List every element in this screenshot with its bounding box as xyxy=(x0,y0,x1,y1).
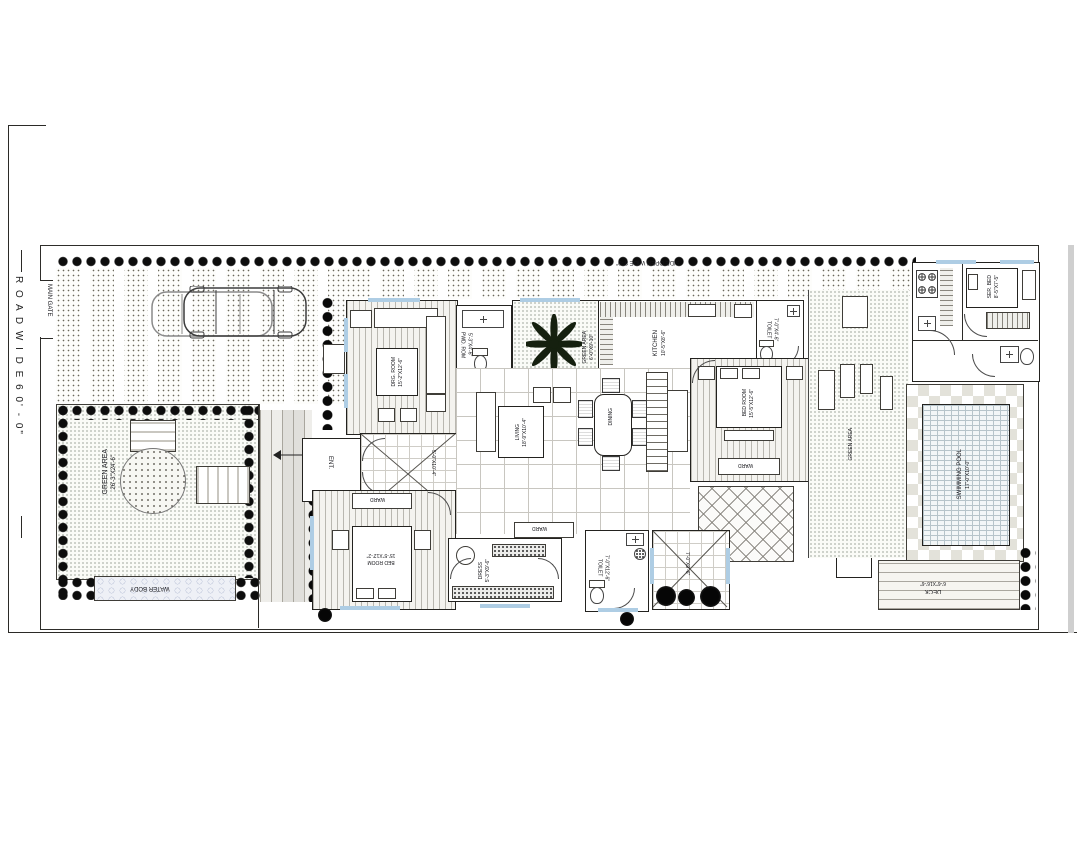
servant-wall-v xyxy=(962,262,963,340)
servant-sink xyxy=(918,316,936,331)
lounger-1 xyxy=(818,370,835,410)
hall-armchair-2 xyxy=(553,387,571,403)
drg-ottoman xyxy=(426,394,446,412)
shrub-bottom-left xyxy=(56,576,96,600)
dress-name: DRESS xyxy=(478,562,484,579)
mbed-bench xyxy=(724,430,774,441)
hall-sofa-right xyxy=(666,390,688,452)
sheet-right-edge xyxy=(1068,245,1074,633)
green-area-right xyxy=(808,290,909,558)
stair-strip xyxy=(646,372,668,472)
stove-icon xyxy=(916,270,938,298)
dress-counter-top xyxy=(492,544,546,557)
planter-box xyxy=(323,344,345,374)
toilet-bottom-name: TOILET xyxy=(597,559,603,576)
servant-side-unit xyxy=(1022,270,1036,300)
mbed-label: BED ROOM 15'-5"X12'-6" xyxy=(726,382,770,424)
living-label-box: LIVING 18'-9"X10'-4" xyxy=(498,406,544,458)
court-window-right xyxy=(726,548,730,584)
road-label: R O A D W I D E 6 0' - 0" xyxy=(12,276,24,512)
sheet-corner-tick xyxy=(8,125,46,126)
kitchen-appliance xyxy=(734,304,752,318)
bed2-pillow-2 xyxy=(378,588,396,599)
mbed-dim: 15'-5"X12'-6" xyxy=(749,389,755,418)
toilet-bottom-label: TOILET 7'-0"X12'-6" xyxy=(594,542,612,594)
pwd-name: PWD. ROM xyxy=(460,332,466,358)
kitchen-name: KITCHEN xyxy=(653,330,660,356)
toilet-bottom-basin xyxy=(626,533,644,546)
dress-label: DRESS 5'-3"X9'-6" xyxy=(474,556,494,586)
hall-armchair-1 xyxy=(533,387,551,403)
dining-chair-4 xyxy=(632,428,647,446)
pool-dim: 17'-0"X10'-0" xyxy=(965,460,971,489)
sheet-left-border xyxy=(8,125,9,633)
court-bush-3 xyxy=(700,586,721,607)
servant-bed-pillow xyxy=(968,274,978,290)
drg-window-left-2 xyxy=(344,374,348,408)
garden-steps-side xyxy=(196,466,250,504)
road-dash-top xyxy=(21,250,22,272)
bottom-bush-2 xyxy=(620,612,634,626)
shrub-row-top xyxy=(56,404,258,420)
bed2-name: BED ROOM xyxy=(367,560,394,566)
green-area-right-label: GREEN AREA xyxy=(848,428,854,461)
dress-counter-bottom xyxy=(452,586,554,599)
lounger-3 xyxy=(860,364,873,394)
hedge-right-bottom xyxy=(1018,546,1036,610)
bottom-bush-1 xyxy=(318,608,332,622)
kitchen-counter-left xyxy=(600,317,613,365)
lounger-2 xyxy=(840,364,855,398)
main-gate-opening xyxy=(38,281,42,337)
dining-chair-5 xyxy=(602,378,620,393)
servant-bed-dim: 8'-5"X7'-5" xyxy=(994,275,1000,298)
kitchen-label: KITCHEN 10'-5"X8'-6" xyxy=(648,320,672,366)
gate-stub-bottom xyxy=(40,338,53,339)
green-area-main-label: GREEN AREA 26'-3"X24'-6" xyxy=(96,420,124,524)
car-icon xyxy=(150,286,310,342)
pwd-label: PWD. ROM 5'-3"X4'-6" xyxy=(459,320,473,370)
toilet-top-label: TOILET 7'-0"X4'-6" xyxy=(764,306,780,354)
servant-counter xyxy=(940,268,953,326)
bed2-side-table-1 xyxy=(332,530,349,550)
dress-wardrobe-label: WARD xyxy=(532,525,547,531)
bed2-pillow-1 xyxy=(356,588,374,599)
kitchen-dim: 10'-5"X8'-6" xyxy=(661,330,667,356)
drg-room-name: DRG. ROOM xyxy=(391,357,397,386)
drg-stool-2 xyxy=(400,408,417,422)
deck-name: DECK xyxy=(925,587,942,594)
garden-circle-shrub xyxy=(120,448,186,514)
bottom-window-1 xyxy=(340,606,400,610)
toilet-bottom-shower xyxy=(634,548,646,560)
foyer-dim: 5'-0"X10'-4" xyxy=(430,450,436,476)
bed2-dim: 15'-5"X12'-2" xyxy=(367,553,396,559)
dining-chair-6 xyxy=(602,456,620,471)
mbed-side-table-2 xyxy=(786,366,803,380)
road-dash-bottom xyxy=(21,516,22,538)
green-area-main-dim: 26'-3"X24'-6" xyxy=(111,455,118,490)
side-open-label: SIDE OPEN WIDE 8'-0" xyxy=(616,258,680,265)
living-dim: 18'-9"X10'-4" xyxy=(522,418,528,447)
main-gate-label: MAIN GATE xyxy=(45,284,52,338)
entry-arrow-icon xyxy=(272,448,304,462)
kitchen-counter-top xyxy=(600,302,754,317)
drg-sofa-right xyxy=(426,316,446,394)
servant-toilet-wc xyxy=(1020,348,1034,365)
servant-window-2 xyxy=(1000,260,1034,264)
floor-plan-sheet: R O A D W I D E 6 0' - 0" MAIN GATE GREE… xyxy=(0,0,1080,864)
green-court-dim: 6'-0"X9'-10" xyxy=(589,334,595,360)
dining-chair-1 xyxy=(578,400,593,418)
drg-stool-1 xyxy=(378,408,395,422)
bed2-side-table-2 xyxy=(414,530,431,550)
hedge-top xyxy=(56,255,916,267)
drg-window-left-1 xyxy=(344,318,348,352)
drg-window-top xyxy=(368,298,420,302)
mbed-pillow-1 xyxy=(720,368,738,379)
dining-label: DINING xyxy=(608,408,614,426)
court-bush-2 xyxy=(678,589,695,606)
deck-dim: 6'-6"X16'-6" xyxy=(920,580,946,586)
mbed-pillow-2 xyxy=(742,368,760,379)
entrance-label: ENT. xyxy=(326,456,333,469)
bed2-label: BED ROOM 15'-5"X12'-2" xyxy=(358,544,404,574)
pwd-dim: 5'-3"X4'-6" xyxy=(467,333,473,356)
court-window-top xyxy=(520,298,580,302)
pool-label: SWIMMING POOL 17'-0"X10'-0" xyxy=(950,420,978,528)
bed2-window-left xyxy=(310,516,314,570)
shrub-row-left xyxy=(56,404,72,600)
water-body-label: WATER BODY xyxy=(130,584,170,591)
palm-tree-icon xyxy=(526,314,582,374)
toilet-bottom-dim: 7'-0"X12'-6" xyxy=(604,555,610,581)
outdoor-table xyxy=(842,296,868,328)
drg-sofa-corner xyxy=(350,310,372,328)
toilet-top-dim: 7'-0"X4'-6" xyxy=(773,318,779,341)
deck-strip-wall xyxy=(258,404,259,628)
mbed-name: BED ROOM xyxy=(742,389,748,416)
drg-room-label-box: DRG. ROOM 15'-2"X12'-6" xyxy=(376,348,418,396)
kitchen-sink xyxy=(688,304,716,317)
bed2-wardrobe-label: WARD xyxy=(370,496,385,502)
green-court-name: GREEN AREA xyxy=(582,331,588,364)
servant-window-1 xyxy=(936,260,976,264)
servant-bed-name: SER. BED xyxy=(987,275,993,298)
bottom-window-2 xyxy=(480,604,530,608)
court-dim-label: 7'-0"X9'-6" xyxy=(684,552,690,575)
living-name: LIVING xyxy=(515,424,521,440)
hall-sofa-left xyxy=(476,392,496,452)
court-window-left xyxy=(650,548,654,584)
toilet-top-name: TOILET xyxy=(766,321,772,338)
toilet-top-basin xyxy=(787,305,800,317)
lounger-4 xyxy=(880,376,893,410)
bottom-window-3 xyxy=(598,608,638,612)
dining-chair-3 xyxy=(632,400,647,418)
servant-bed-label: SER. BED 8'-5"X7'-5" xyxy=(980,272,1006,302)
mbed-wardrobe-label: WARD xyxy=(738,462,753,468)
servant-door-mat xyxy=(986,312,1030,329)
drg-room-dim: 15'-2"X12'-6" xyxy=(398,358,404,387)
dress-dim: 5'-3"X9'-6" xyxy=(485,559,491,582)
deck-label: DECK 6'-6"X16'-6" xyxy=(898,576,968,598)
sheet-bottom-border xyxy=(8,632,1077,633)
dining-chair-2 xyxy=(578,428,593,446)
court-bush-1 xyxy=(656,586,676,606)
gate-stub-top xyxy=(40,280,53,281)
servant-toilet-basin xyxy=(1000,346,1019,363)
green-area-main-name: GREEN AREA xyxy=(102,449,110,495)
pool-name: SWIMMING POOL xyxy=(957,449,964,499)
